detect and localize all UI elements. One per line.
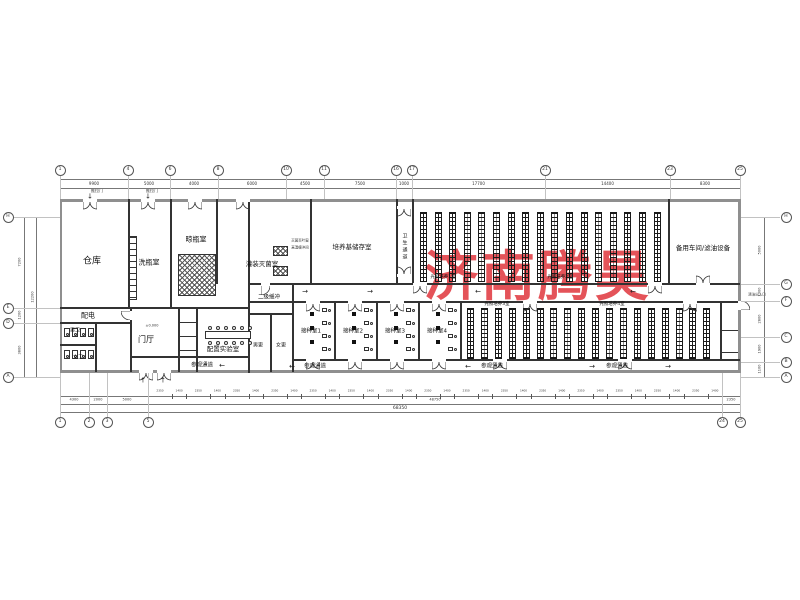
dimension-number: 2350 (616, 390, 623, 393)
grid-bubble: B (781, 357, 792, 368)
lab-stool (216, 326, 220, 330)
grid-leader-line (14, 323, 60, 324)
door-symbol (83, 202, 97, 210)
dimension-number: 2350 (233, 390, 240, 393)
dimension-tick (708, 394, 709, 399)
dimension-number: 1400 (558, 390, 565, 393)
dimension-number: 1400 (443, 390, 450, 393)
grid-leader-line (170, 176, 171, 199)
corridor-arrow: ← (630, 289, 636, 296)
dimension-number: 8300 (700, 182, 710, 186)
wall (170, 199, 172, 309)
grid-bubble: 10 (281, 165, 292, 176)
dimension-number: 2350 (501, 390, 508, 393)
room-label: 备用车间/滤油设备 (676, 245, 730, 252)
annotation-label: 灭菌百叶窗 (291, 239, 309, 243)
dimension-number: 1100 (758, 365, 762, 374)
door-symbol (306, 304, 320, 312)
dimension-number: 1400 (329, 390, 336, 393)
lab-stool (248, 326, 252, 330)
grid-leader-line (218, 176, 219, 199)
equipment-square (352, 312, 356, 316)
room-label: 参观通道 (481, 364, 503, 370)
grid-leader-line (14, 377, 60, 378)
dimension-line (764, 217, 765, 377)
dimension-tick (631, 394, 632, 399)
dimension-number: 4000 (189, 182, 199, 186)
grid-bubble: 3 (102, 417, 113, 428)
door-symbol (413, 286, 427, 294)
door-symbol (432, 362, 446, 370)
dimension-number: 5000 (144, 182, 154, 186)
lab-stool (240, 341, 244, 345)
equipment-seat (322, 334, 327, 338)
cultivation-rack (566, 212, 573, 282)
dimension-tick (454, 394, 455, 399)
grid-bubble: 17 (407, 165, 418, 176)
grid-leader-line (14, 308, 60, 309)
wall (248, 199, 250, 373)
cultivation-rack (689, 308, 696, 359)
equipment-seat (364, 347, 369, 351)
door-symbol (236, 202, 250, 210)
equipment-seat (448, 334, 453, 338)
cultivation-rack (648, 308, 655, 359)
grid-leader-line (741, 217, 780, 218)
dimension-number: 5000 (123, 398, 132, 402)
dimension-number: 17700 (472, 182, 485, 186)
dimension-tick (249, 394, 250, 399)
cultivation-rack (634, 308, 641, 359)
dimension-number: 2350 (539, 390, 546, 393)
equipment-square (310, 312, 314, 316)
equipment-seat (364, 308, 369, 312)
cultivation-rack (467, 308, 474, 359)
equipment-seat (322, 308, 327, 312)
door-symbol (696, 275, 710, 283)
dimension-number: 1400 (367, 390, 374, 393)
cultivation-rack (537, 308, 544, 359)
cultivation-rack (522, 212, 529, 282)
equipment-square (352, 340, 356, 344)
equipment-seat-dot (328, 309, 331, 312)
grid-leader-line (396, 176, 397, 199)
grid-bubble: 25 (735, 165, 746, 176)
equipment-seat (322, 347, 327, 351)
dimension-number: 1200 (18, 311, 22, 320)
equipment-seat-dot (412, 322, 415, 325)
equipment-seat-dot (328, 348, 331, 351)
grid-leader-line (741, 301, 780, 302)
dimension-number: 1400 (711, 390, 718, 393)
equipment-seat-dot (454, 335, 457, 338)
grid-bubble: 23 (665, 165, 676, 176)
room-label: 参观通道 (606, 364, 628, 370)
room-label: 培养基储存室 (333, 244, 372, 251)
wall (60, 199, 62, 373)
dimension-tick (363, 394, 364, 399)
dimension-number: 2350 (424, 390, 431, 393)
dimension-tick (555, 394, 556, 399)
grid-leader-line (324, 176, 325, 199)
dimension-number: 2350 (348, 390, 355, 393)
dimension-number: 12200 (31, 291, 35, 302)
toilet-fixture-bowl (90, 355, 93, 358)
dimension-tick (325, 394, 326, 399)
grid-leader-line (60, 176, 61, 199)
grid-bubble: 6 (165, 165, 176, 176)
dimension-line (60, 396, 740, 397)
equipment-seat-dot (454, 348, 457, 351)
toilet-fixture-bowl (66, 355, 69, 358)
room-label: 配置实验室 (207, 346, 240, 353)
room-label: 卫生通道 (402, 233, 407, 261)
cultivation-rack (662, 308, 669, 359)
cultivation-rack (550, 308, 557, 359)
door-symbol (432, 304, 446, 312)
corridor-arrow: → (665, 364, 671, 371)
door-symbol (348, 304, 362, 312)
room-label: 光照培养3室 (484, 303, 509, 308)
room-label: 男更 (253, 344, 263, 349)
dimension-number: 1400 (596, 390, 603, 393)
ladder-shaft (128, 236, 137, 300)
cultivation-rack (495, 308, 502, 359)
equipment-seat (406, 308, 411, 312)
cultivation-rack (581, 212, 588, 282)
grid-bubble: D (3, 318, 14, 329)
cultivation-rack (464, 212, 471, 282)
cultivation-rack (578, 308, 585, 359)
grid-leader-line (286, 176, 287, 199)
grid-bubble: G (781, 279, 792, 290)
grid-bubble: A (781, 372, 792, 383)
dimension-number: 2800 (758, 315, 762, 324)
cultivation-rack (624, 212, 631, 282)
dimension-tick (669, 394, 670, 399)
room-label: 二级缓冲 (258, 295, 280, 301)
door-symbol (397, 266, 411, 274)
dimension-number: 1300 (758, 288, 762, 297)
grid-bubble: 24 (717, 417, 728, 428)
equipment-seat (448, 347, 453, 351)
dimension-number: 7500 (355, 182, 365, 186)
door-symbol (348, 362, 362, 370)
grid-leader-line (741, 362, 780, 363)
room-label: 灌装灭菌室 (246, 261, 279, 268)
grid-bubble: H (781, 212, 792, 223)
wall (178, 307, 180, 372)
dimension-number: 1400 (673, 390, 680, 393)
hatch-block (178, 254, 216, 296)
grid-leader-line (545, 176, 546, 199)
corridor-arrow: ↓ (87, 194, 93, 201)
room-label: 女更 (276, 344, 286, 349)
grid-leader-line (60, 373, 61, 417)
dimension-number: 1400 (520, 390, 527, 393)
dimension-number: 1400 (405, 390, 412, 393)
wall (668, 199, 670, 284)
dimension-number: 1400 (635, 390, 642, 393)
dimension-line (60, 412, 740, 413)
grid-bubble: A (3, 372, 14, 383)
wall (178, 350, 196, 351)
wall (60, 307, 250, 309)
wall (376, 301, 378, 360)
dimension-tick (186, 394, 187, 399)
dimension-number: 4500 (300, 182, 310, 186)
dimension-tick (645, 394, 646, 399)
lab-stool (240, 326, 244, 330)
dimension-tick (569, 394, 570, 399)
room-label: 接种室3 (385, 329, 405, 335)
dimension-tick (263, 394, 264, 399)
corridor-arrow: ← (465, 364, 471, 371)
cultivation-rack (449, 212, 456, 282)
wall (720, 352, 738, 353)
cultivation-rack (595, 212, 602, 282)
grid-leader-line (741, 284, 780, 285)
corridor-arrow: ← (289, 364, 295, 371)
door-gap (130, 311, 133, 320)
grid-bubble: 16 (391, 165, 402, 176)
dimension-line (60, 188, 740, 189)
grid-leader-line (740, 373, 741, 417)
dimension-number: 9900 (89, 182, 99, 186)
dimension-number: 48750 (429, 398, 440, 402)
equipment-seat (364, 334, 369, 338)
dimension-number: 6000 (247, 182, 257, 186)
equipment-square (394, 312, 398, 316)
cultivation-rack (606, 308, 613, 359)
dimension-tick (478, 394, 479, 399)
grid-bubble: 11 (319, 165, 330, 176)
cultivation-rack (592, 308, 599, 359)
grid-bubble: C (781, 332, 792, 343)
grid-bubble: 1 (55, 417, 66, 428)
dimension-number: 2350 (727, 398, 736, 402)
wall (216, 199, 218, 284)
grid-leader-line (107, 373, 108, 417)
wall (334, 301, 336, 360)
dimension-number: 1400 (214, 390, 221, 393)
grid-leader-line (741, 337, 780, 338)
equipment-seat-dot (454, 309, 457, 312)
grid-leader-line (148, 373, 149, 417)
cultivation-rack (537, 212, 544, 282)
equipment-seat-dot (370, 309, 373, 312)
lab-stool (232, 326, 236, 330)
dimension-line (24, 217, 25, 377)
wall (270, 313, 272, 372)
door-symbol (390, 362, 404, 370)
wall (310, 199, 312, 284)
door-gap (696, 283, 710, 286)
room-label: 光照培养4室 (599, 303, 624, 308)
equipment-seat (406, 334, 411, 338)
door-gap (397, 274, 411, 277)
door-symbol (397, 209, 411, 217)
wall (248, 313, 292, 315)
cultivation-rack (610, 212, 617, 282)
dimension-number: 2350 (271, 390, 278, 393)
grid-leader-line (722, 373, 723, 417)
door-symbol (390, 304, 404, 312)
room-label: 门厅 (138, 336, 154, 344)
dimension-number: 2350 (463, 390, 470, 393)
wall (130, 356, 248, 358)
toilet-fixture-bowl (90, 333, 93, 336)
wall (248, 283, 740, 285)
dimension-line (36, 217, 37, 377)
corridor-arrow: ↑ (140, 378, 146, 385)
dimension-tick (301, 394, 302, 399)
hatch-block (273, 246, 288, 256)
corridor-arrow: ← (219, 363, 225, 370)
equipment-seat-dot (454, 322, 457, 325)
grid-bubble: 4 (123, 165, 134, 176)
equipment-seat (364, 321, 369, 325)
dimension-tick (378, 394, 379, 399)
wall (178, 322, 196, 323)
room-label: 参观通道 (191, 363, 213, 369)
cultivation-rack (435, 212, 442, 282)
room-label: 接种室2 (343, 329, 363, 335)
grid-bubble: F (781, 296, 792, 307)
dimension-tick (287, 394, 288, 399)
cultivation-rack (478, 212, 485, 282)
dimension-number: 1400 (176, 390, 183, 393)
corridor-arrow: → (302, 289, 308, 296)
cultivation-rack (654, 212, 661, 282)
door-symbol (141, 202, 155, 210)
dimension-tick (516, 394, 517, 399)
dimension-tick (339, 394, 340, 399)
door-symbol (523, 304, 537, 312)
cultivation-rack (509, 308, 516, 359)
wall (460, 301, 462, 360)
equipment-seat (448, 321, 453, 325)
dimension-number: 2350 (654, 390, 661, 393)
room-label: 晾瓶室 (186, 237, 207, 244)
grid-bubble: H (3, 212, 14, 223)
door-symbol (188, 202, 202, 210)
equipment-seat (448, 308, 453, 312)
dimension-number: 4300 (70, 398, 79, 402)
dimension-number: 3800 (18, 346, 22, 355)
dimension-number: 68350 (393, 407, 407, 412)
dimension-number: 2000 (94, 398, 103, 402)
wall (738, 199, 741, 373)
dimension-tick (684, 394, 685, 399)
cultivation-rack (420, 212, 427, 282)
equipment-seat-dot (370, 322, 373, 325)
cultivation-rack (508, 212, 515, 282)
dimension-number: 1400 (290, 390, 297, 393)
annotation-label: 高温缓冲间 (291, 246, 309, 250)
grid-leader-line (89, 373, 90, 417)
wall (95, 322, 97, 372)
equipment-seat-dot (412, 335, 415, 338)
equipment-square (310, 340, 314, 344)
dimension-tick (531, 394, 532, 399)
annotation-label: ±0.000 (146, 324, 159, 328)
grid-bubble: 5 (143, 417, 154, 428)
dimension-number: 2350 (156, 390, 163, 393)
grid-leader-line (14, 217, 60, 218)
wall (720, 330, 738, 331)
lab-stool (224, 326, 228, 330)
door-symbol (683, 304, 697, 312)
lab-bench (205, 331, 251, 339)
dimension-number: 2350 (692, 390, 699, 393)
dimension-number: 2350 (386, 390, 393, 393)
dimension-number: 2350 (577, 390, 584, 393)
room-label: 光照培养2室 (547, 276, 572, 281)
dimension-tick (416, 394, 417, 399)
dimension-line (60, 179, 740, 180)
corridor-arrow: ← (475, 289, 481, 296)
dimension-number: 1900 (758, 345, 762, 354)
equipment-seat-dot (328, 335, 331, 338)
dimension-number: 1400 (252, 390, 259, 393)
cultivation-rack (620, 308, 627, 359)
grid-bubble: E (3, 303, 14, 314)
room-label: 参观通道 (304, 364, 326, 370)
grid-bubble: 8 (213, 165, 224, 176)
equipment-seat-dot (370, 335, 373, 338)
dimension-number: 1000 (399, 182, 409, 186)
floor-plan-drawing: 济南腾昊 仓库洗瓶室晾瓶室灌装灭菌室培养基储存室卫生通道光照培养1室光照培养2室… (0, 0, 800, 600)
equipment-seat (406, 321, 411, 325)
corridor-arrow: → (367, 289, 373, 296)
dimension-tick (402, 394, 403, 399)
lab-stool (208, 326, 212, 330)
equipment-square (436, 312, 440, 316)
room-label: 光照培养1室 (430, 276, 455, 281)
corridor-arrow: → (589, 364, 595, 371)
grid-leader-line (741, 377, 780, 378)
room-label: 配电 (81, 313, 95, 320)
dimension-number: 2350 (195, 390, 202, 393)
dimension-number: 2350 (309, 390, 316, 393)
door-symbol (121, 311, 130, 320)
grid-bubble: 1 (55, 165, 66, 176)
toilet-fixture-bowl (66, 333, 69, 336)
room-label: 接种室1 (301, 329, 321, 335)
corridor-arrow: ↓ (145, 194, 151, 201)
grid-leader-line (412, 176, 413, 199)
equipment-seat (406, 347, 411, 351)
grid-bubble: 25 (735, 417, 746, 428)
room-label: 接种室4 (427, 329, 447, 335)
cultivation-rack (639, 212, 646, 282)
wall (412, 199, 414, 284)
cultivation-rack (564, 308, 571, 359)
equipment-square (436, 340, 440, 344)
dimension-tick (172, 394, 173, 399)
cultivation-rack (493, 212, 500, 282)
wall (178, 336, 196, 337)
cultivation-rack (703, 308, 710, 359)
room-label: 男卫 (70, 329, 80, 334)
wall (60, 199, 741, 202)
dimension-tick (607, 394, 608, 399)
grid-bubble: 21 (540, 165, 551, 176)
cultivation-rack (551, 212, 558, 282)
equipment-seat (322, 321, 327, 325)
grid-leader-line (128, 176, 129, 199)
